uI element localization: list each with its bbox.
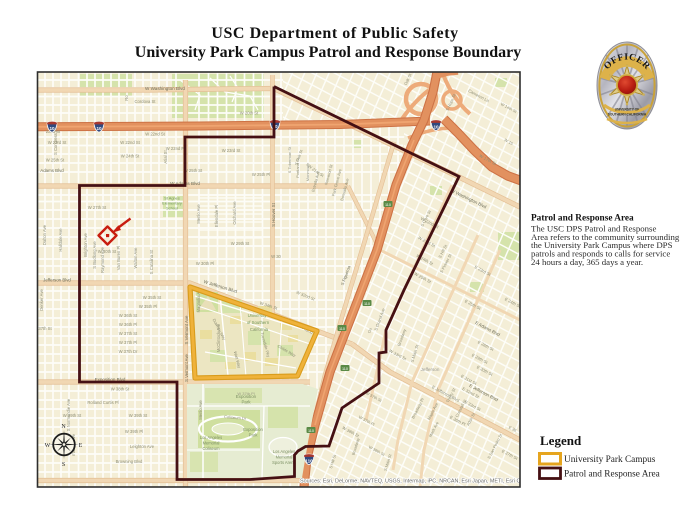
- svg-text:Menlo Ave: Menlo Ave: [196, 204, 201, 224]
- svg-text:W 37th Dr: W 37th Dr: [119, 349, 138, 354]
- svg-text:W 22nd P: W 22nd P: [166, 146, 185, 151]
- svg-text:W 23rd St: W 23rd St: [222, 148, 241, 153]
- svg-text:S: S: [62, 462, 65, 468]
- svg-text:Leighton Ave: Leighton Ave: [130, 444, 155, 449]
- svg-text:Legend: Legend: [540, 433, 582, 448]
- svg-text:W 25th St: W 25th St: [184, 168, 203, 173]
- svg-text:USC Department of Public Safet: USC Department of Public Safety: [211, 25, 458, 42]
- svg-text:Sports Arena: Sports Arena: [272, 460, 296, 465]
- svg-text:Jefferson: Jefferson: [421, 367, 440, 372]
- svg-text:W 20th St: W 20th St: [240, 111, 259, 116]
- svg-text:Cordova St: Cordova St: [135, 99, 157, 104]
- svg-text:Patrol and Response Area: Patrol and Response Area: [531, 214, 634, 224]
- svg-text:S Vermont Ave: S Vermont Ave: [184, 315, 189, 345]
- svg-text:Dalton Ave: Dalton Ave: [42, 224, 47, 245]
- svg-text:S Vermont Ave: S Vermont Ave: [184, 354, 189, 382]
- svg-text:Los Angeles: Los Angeles: [200, 435, 222, 440]
- svg-text:Halldale Ave: Halldale Ave: [58, 228, 63, 252]
- svg-text:Memorial: Memorial: [203, 441, 220, 446]
- svg-text:W 35th St: W 35th St: [143, 295, 162, 300]
- svg-text:24 hours a day, 365 days a yea: 24 hours a day, 365 days a year.: [531, 257, 643, 267]
- svg-text:W 37th Pl: W 37th Pl: [119, 340, 137, 345]
- svg-text:S Toberman St: S Toberman St: [287, 146, 292, 173]
- svg-text:of Southern: of Southern: [247, 320, 270, 325]
- svg-text:W 24th St: W 24th St: [121, 154, 140, 159]
- svg-text:10: 10: [433, 124, 439, 129]
- svg-text:Sources: Esri, DeLorme, NAVTEQ: Sources: Esri, DeLorme, NAVTEQ, USGS, In…: [300, 479, 531, 485]
- svg-text:Monmouth: Monmouth: [305, 163, 310, 181]
- svg-text:110: 110: [364, 302, 370, 306]
- svg-text:W 36th Pl: W 36th Pl: [119, 322, 137, 327]
- svg-text:W 30: W 30: [271, 254, 281, 259]
- svg-text:School: School: [166, 206, 178, 211]
- svg-text:Coliseum: Coliseum: [202, 446, 220, 451]
- svg-text:110: 110: [308, 429, 314, 433]
- svg-text:Menlo Ave: Menlo Ave: [198, 400, 203, 420]
- svg-text:S Catalina St: S Catalina St: [149, 249, 154, 274]
- svg-text:Exposition: Exposition: [243, 427, 263, 432]
- svg-text:Park: Park: [249, 433, 259, 438]
- svg-text:Ellendale Pl: Ellendale Pl: [214, 205, 219, 227]
- svg-text:S Hoover St: S Hoover St: [271, 202, 276, 226]
- svg-text:Raymond Ave: Raymond Ave: [100, 246, 105, 273]
- svg-text:Jefferson Blvd: Jefferson Blvd: [43, 278, 71, 283]
- svg-text:W 27th St: W 27th St: [88, 205, 107, 210]
- svg-text:E: E: [79, 443, 83, 449]
- svg-text:W 36th St: W 36th St: [119, 313, 138, 318]
- svg-text:10: 10: [96, 126, 102, 131]
- svg-text:W 22nd St: W 22nd St: [120, 140, 140, 145]
- svg-text:Los Angeles: Los Angeles: [273, 449, 295, 454]
- svg-text:W 30th Pl: W 30th Pl: [196, 261, 214, 266]
- svg-text:SOUTHERN CALIFORNIA: SOUTHERN CALIFORNIA: [608, 113, 647, 117]
- svg-text:Orchard Ave: Orchard Ave: [232, 201, 237, 225]
- svg-text:W 29th St: W 29th St: [231, 241, 250, 246]
- svg-text:Portland St: Portland St: [295, 157, 300, 178]
- svg-text:California: California: [250, 327, 269, 332]
- svg-text:37th St: 37th St: [38, 326, 52, 331]
- svg-text:W 25th St: W 25th St: [46, 158, 65, 163]
- svg-text:10: 10: [49, 126, 55, 131]
- svg-text:Park: Park: [241, 400, 251, 405]
- svg-text:110: 110: [339, 327, 345, 331]
- svg-text:Rolland Curtis Pl: Rolland Curtis Pl: [87, 400, 118, 405]
- svg-text:Memorial: Memorial: [276, 455, 293, 460]
- svg-text:University Park Campus: University Park Campus: [564, 455, 656, 465]
- svg-text:Brighton Ave: Brighton Ave: [83, 232, 88, 256]
- svg-text:Denker Ave: Denker Ave: [39, 289, 44, 311]
- svg-text:Atial St: Atial St: [163, 150, 168, 164]
- svg-text:W 35th Pl: W 35th Pl: [139, 304, 157, 309]
- svg-text:Browning Blvd: Browning Blvd: [116, 459, 143, 464]
- svg-text:W 37th St: W 37th St: [119, 331, 138, 336]
- svg-text:Exposition: Exposition: [236, 394, 257, 399]
- svg-text:Adams Blvd: Adams Blvd: [40, 168, 64, 173]
- svg-text:W 39th Pl: W 39th Pl: [125, 429, 143, 434]
- svg-text:W 25th Pl: W 25th Pl: [252, 172, 270, 177]
- svg-text:W 39th St: W 39th St: [129, 413, 148, 418]
- svg-text:Patrol and Response Area: Patrol and Response Area: [564, 470, 660, 480]
- svg-text:W: W: [45, 443, 51, 449]
- svg-text:UNIVERSITY OF: UNIVERSITY OF: [615, 108, 639, 112]
- svg-text:W Washington Blvd: W Washington Blvd: [145, 86, 185, 91]
- svg-text:S Budlong Ave: S Budlong Ave: [92, 241, 97, 269]
- svg-text:W 22nd St: W 22nd St: [145, 132, 165, 137]
- svg-text:110: 110: [385, 203, 391, 207]
- svg-text:110: 110: [305, 458, 313, 463]
- svg-text:Walton Ave: Walton Ave: [133, 247, 138, 269]
- svg-text:Ro: Ro: [124, 95, 129, 101]
- svg-text:University Park Campus Patrol: University Park Campus Patrol and Respon…: [135, 44, 521, 61]
- svg-text:110: 110: [342, 367, 348, 371]
- svg-text:Van Buren Pl: Van Buren Pl: [116, 246, 121, 270]
- svg-text:N: N: [61, 424, 66, 430]
- svg-text:W 38th St: W 38th St: [111, 387, 130, 392]
- svg-text:S Normandie Ave: S Normandie Ave: [66, 398, 71, 431]
